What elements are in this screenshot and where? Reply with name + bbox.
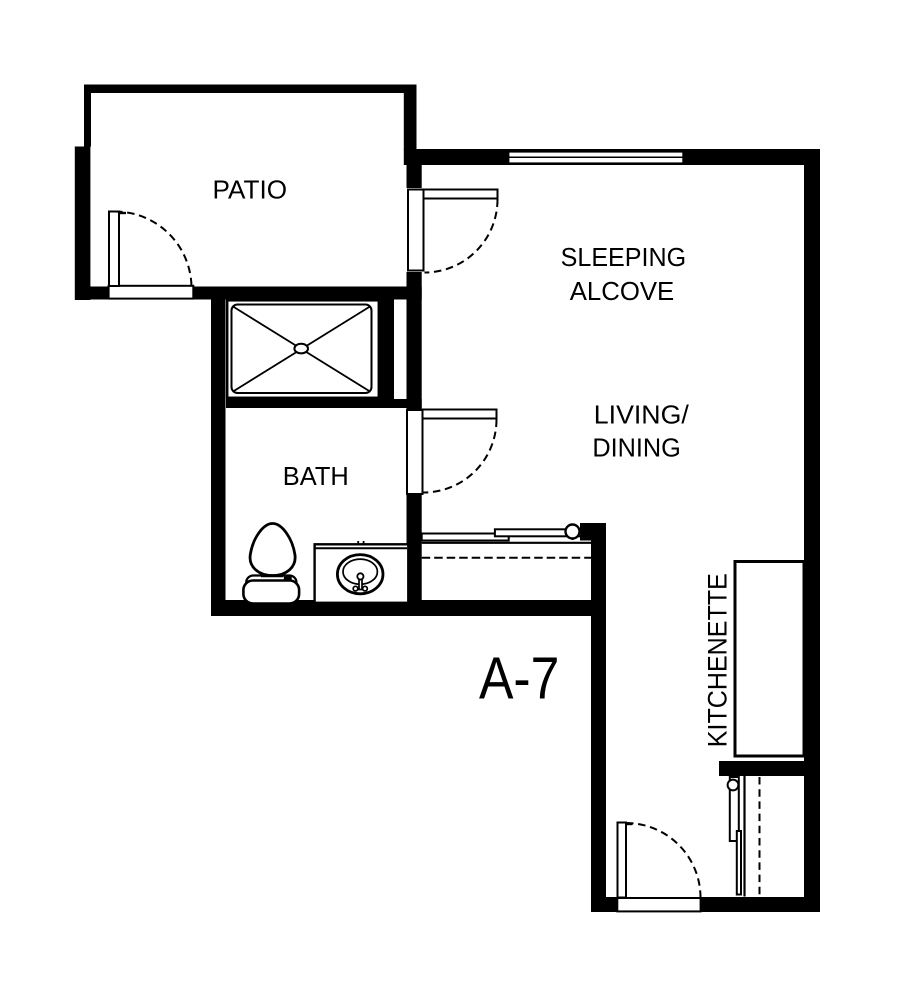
svg-text:LIVING/: LIVING/ (594, 399, 690, 429)
svg-text:SLEEPING: SLEEPING (561, 242, 687, 272)
svg-text:BATH: BATH (283, 461, 349, 491)
svg-text:KITCHENETTE: KITCHENETTE (702, 573, 732, 747)
svg-text:A-7: A-7 (479, 646, 560, 712)
svg-text:PATIO: PATIO (213, 175, 288, 205)
svg-text:ALCOVE: ALCOVE (570, 276, 675, 306)
svg-text:DINING: DINING (592, 432, 681, 462)
